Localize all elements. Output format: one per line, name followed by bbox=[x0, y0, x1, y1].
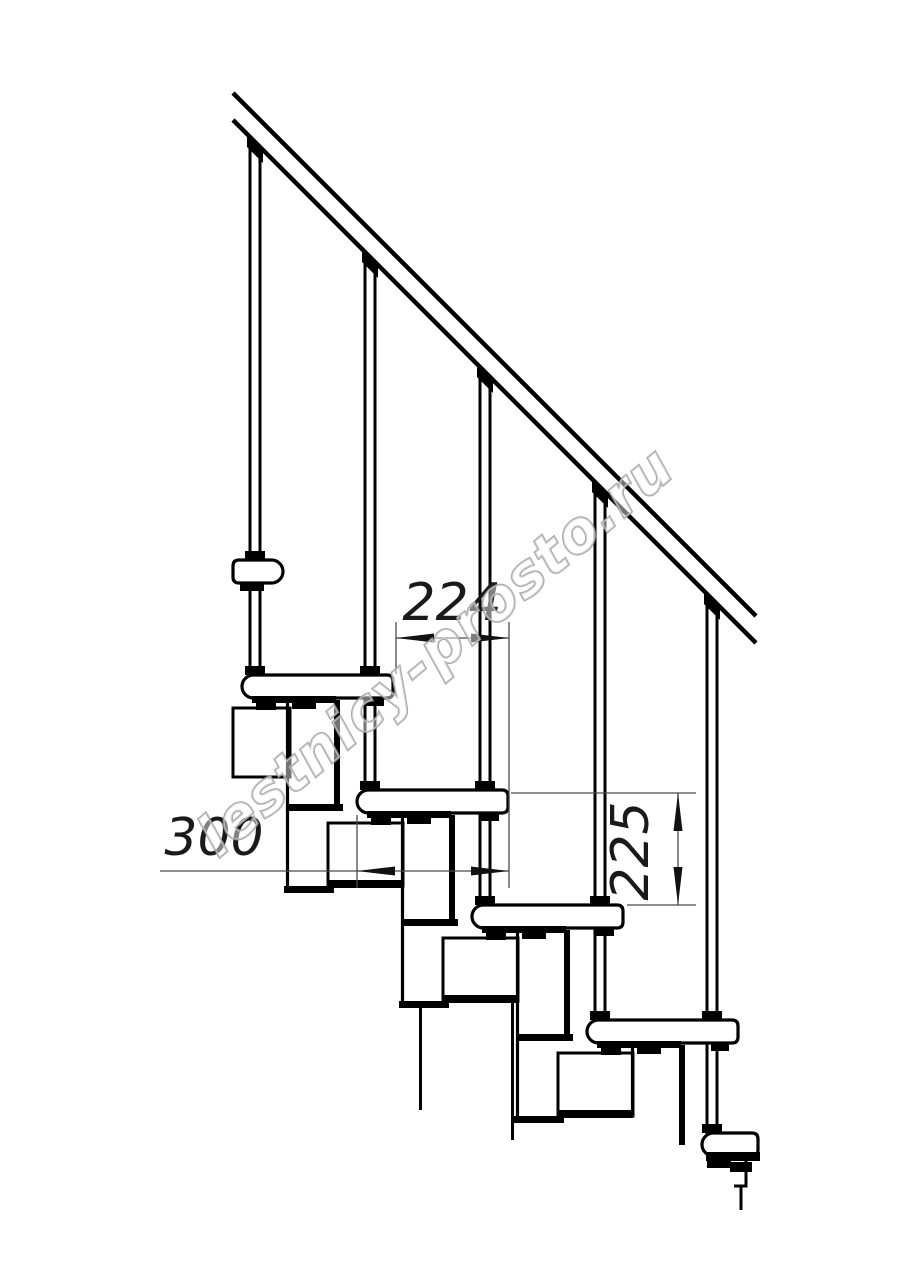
module-wall bbox=[449, 815, 455, 923]
tread bbox=[472, 905, 623, 928]
tread bbox=[233, 560, 283, 583]
module-wall bbox=[564, 930, 570, 1038]
baluster bbox=[704, 593, 720, 1135]
dimension-label-step-rise: 225 bbox=[601, 801, 661, 900]
baluster bbox=[592, 481, 608, 1022]
tread bbox=[357, 790, 508, 813]
dimension-step-rise: 225 bbox=[511, 793, 696, 905]
module-plate bbox=[401, 919, 458, 926]
staircase-drawing-canvas: 224300225lestnicy-prosto.ru bbox=[0, 0, 914, 1280]
baluster bbox=[247, 136, 263, 677]
module-wall bbox=[679, 1045, 685, 1145]
tread bbox=[587, 1020, 738, 1043]
technical-drawing-page: 224300225lestnicy-prosto.ru bbox=[0, 0, 914, 1280]
module-box bbox=[443, 938, 518, 1001]
module-box bbox=[328, 823, 403, 886]
module-box bbox=[558, 1053, 633, 1116]
module-plate bbox=[516, 1034, 573, 1041]
staircase-side-view-technical-drawing: 224300225lestnicy-prosto.ru bbox=[0, 0, 914, 1280]
